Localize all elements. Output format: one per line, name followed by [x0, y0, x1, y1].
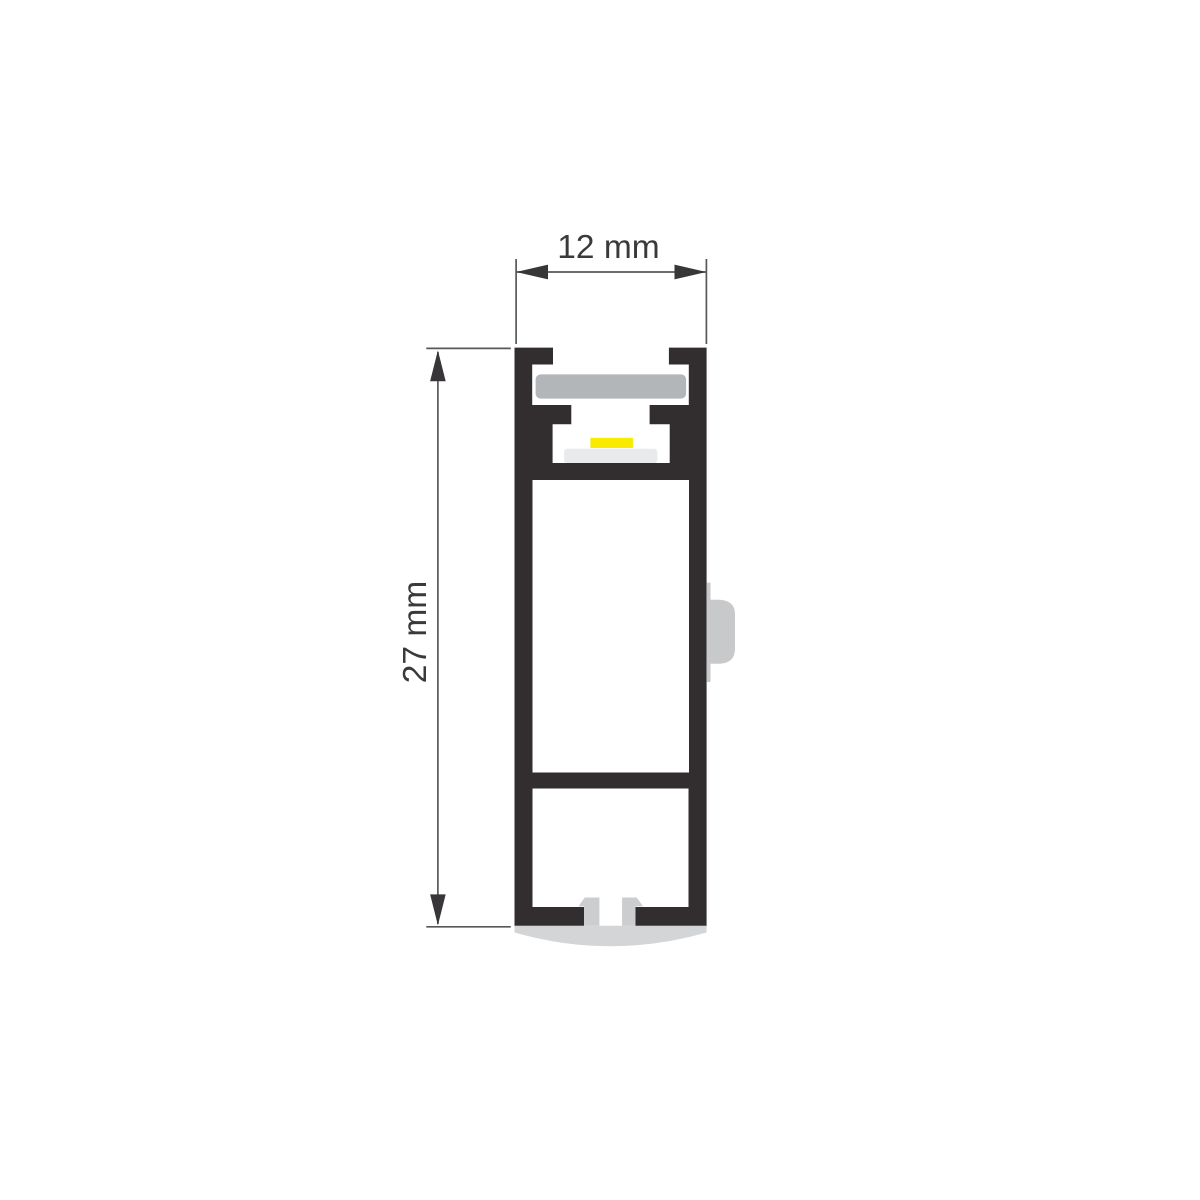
svg-text:27 mm: 27 mm [397, 581, 434, 683]
svg-text:12 mm: 12 mm [557, 229, 659, 266]
